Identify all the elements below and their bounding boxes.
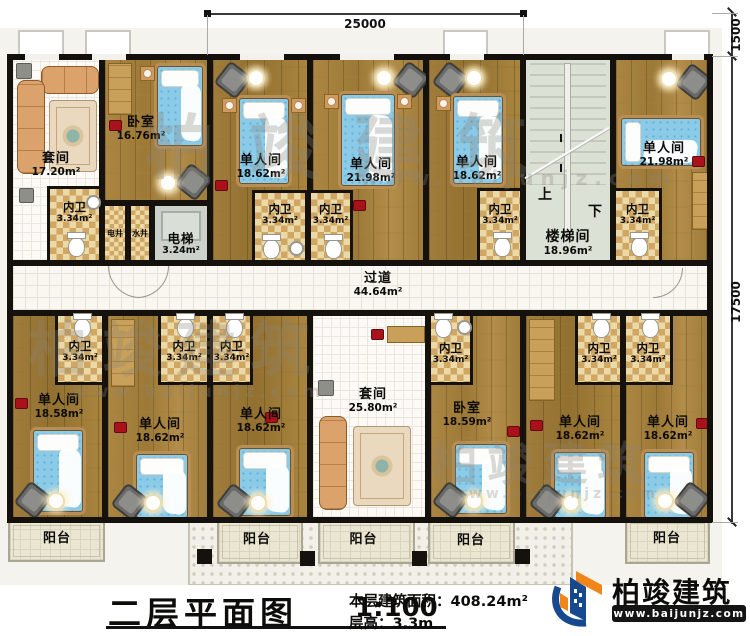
bathroom: 内卫3.34m² xyxy=(210,313,253,385)
balcony-label: 阳台 xyxy=(623,532,711,547)
dimension-line-top xyxy=(207,13,524,15)
toilet-icon xyxy=(642,318,659,338)
floor-area-value: 408.24m² xyxy=(451,594,528,610)
room-label: 内卫3.34m² xyxy=(213,340,250,363)
sink-icon xyxy=(457,320,472,335)
toilet-icon xyxy=(593,318,610,338)
toilet-icon xyxy=(494,237,511,257)
bathroom: 内卫3.34m² xyxy=(613,188,662,263)
toilet-icon xyxy=(263,239,280,259)
stair-rail xyxy=(564,63,571,233)
toilet-icon xyxy=(74,318,91,338)
room-label: 单人间18.62m² xyxy=(213,408,309,434)
room-bedroom-top: 卧室16.76m² xyxy=(102,57,210,203)
floor-area-line: 本层建筑面积：408.24m² xyxy=(349,590,528,611)
room-label: 内卫3.34m² xyxy=(626,342,670,365)
room-suite-bottom: 套间25.80m² xyxy=(310,313,428,520)
room-stairwell: 上 下 楼梯间18.96m² xyxy=(523,57,613,263)
room-label: 楼梯间18.96m² xyxy=(528,230,608,257)
bathroom: 内卫3.34m² xyxy=(623,313,673,385)
ceiling-light-icon xyxy=(249,494,267,512)
stairs-up-label: 上 xyxy=(538,184,552,204)
water-shaft: 水井 xyxy=(128,203,152,263)
ceiling-light-icon xyxy=(465,492,483,510)
lamp-icon xyxy=(215,180,228,191)
room-label: 单人间18.62m² xyxy=(626,416,710,442)
floor-height-line: 层高：3.3m xyxy=(349,612,433,633)
balcony-label: 阳台 xyxy=(316,533,411,548)
balcony-label: 阳台 xyxy=(12,532,102,547)
room-label: 单人间18.58m² xyxy=(13,394,105,420)
window xyxy=(240,54,284,60)
dimension-top-value: 25000 xyxy=(330,17,400,31)
armchair-icon xyxy=(173,162,212,201)
ceiling-light-icon xyxy=(562,494,580,512)
ceiling-light-icon xyxy=(375,69,393,87)
wardrobe-icon xyxy=(692,172,708,230)
cabinet-icon xyxy=(16,63,32,79)
column xyxy=(300,551,315,566)
floor-height-value: 3.3m xyxy=(393,616,434,632)
toilet-icon xyxy=(325,239,342,259)
room-label: 内卫3.34m² xyxy=(480,203,520,226)
door-arc xyxy=(137,266,169,298)
dimension-line-right xyxy=(731,12,733,524)
room-label: 单人间18.62m² xyxy=(534,416,626,442)
ceiling-light-icon xyxy=(247,69,265,87)
dimension-right-lower-value: 17500 xyxy=(729,272,743,332)
window xyxy=(672,54,704,60)
electrical-shaft: 电井 xyxy=(102,203,128,263)
column xyxy=(412,551,427,566)
ceiling-light-icon xyxy=(47,492,65,510)
balcony-label: 阳台 xyxy=(212,533,302,548)
sink-icon xyxy=(289,241,304,256)
toilet-icon xyxy=(177,318,194,338)
wardrobe-icon xyxy=(111,319,135,387)
lamp-icon xyxy=(371,329,384,340)
room-label: 单人间21.98m² xyxy=(622,142,706,168)
room-label: 单人间18.62m² xyxy=(435,156,519,182)
door-arc xyxy=(108,266,140,298)
room-label: 电井 xyxy=(105,206,125,260)
room-label: 内卫3.34m² xyxy=(578,342,620,365)
ceiling-light-icon xyxy=(660,70,678,88)
room-label: 单人间21.98m² xyxy=(325,158,417,184)
ceiling-light-icon xyxy=(465,69,483,87)
ceiling-light-icon xyxy=(656,492,674,510)
room-label: 内卫3.34m² xyxy=(616,203,659,226)
ceiling-light-icon xyxy=(144,494,162,512)
bathroom: 内卫3.34m² xyxy=(477,188,523,263)
title-block: 二层平面图 1:100 本层建筑面积：408.24m² 层高：3.3m 柏竣建筑… xyxy=(0,585,750,636)
bathroom: 内卫3.34m² xyxy=(308,190,353,263)
toilet-icon xyxy=(435,318,452,338)
room-label: 内卫3.34m² xyxy=(311,203,350,226)
bathroom: 内卫3.34m² xyxy=(55,313,105,385)
corridor: 过道44.64m² xyxy=(10,263,710,313)
room-label: 内卫3.34m² xyxy=(161,340,207,363)
room-label: 单人间18.62m² xyxy=(217,154,305,180)
column xyxy=(515,549,530,564)
room-label: 电梯3.24m² xyxy=(155,232,207,257)
column xyxy=(197,549,212,564)
bathroom: 内卫3.34m² xyxy=(158,313,210,385)
cabinet-icon xyxy=(19,188,34,203)
sofa-icon xyxy=(41,66,99,94)
room-label: 内卫3.34m² xyxy=(50,201,99,224)
sofa-icon xyxy=(319,416,347,510)
door-arc xyxy=(653,268,683,298)
window xyxy=(340,54,394,60)
room-label: 卧室16.76m² xyxy=(105,116,177,142)
extension-line xyxy=(207,15,208,55)
bathroom: 内卫3.34m² xyxy=(252,190,308,263)
bed-icon xyxy=(136,454,188,518)
brand-website: www.baijunjz.com xyxy=(612,605,746,622)
desk-icon xyxy=(387,326,425,343)
room-label: 内卫3.34m² xyxy=(58,340,102,363)
window xyxy=(92,54,126,60)
room-label: 套间25.80m² xyxy=(327,388,419,414)
room-label: 水井 xyxy=(131,206,149,260)
room-label: 单人间18.62m² xyxy=(114,418,206,444)
room-label: 过道44.64m² xyxy=(333,272,423,298)
room-label: 内卫3.34m² xyxy=(431,342,470,365)
bathroom: 内卫3.34m² xyxy=(428,313,473,385)
floor-height-label: 层高： xyxy=(349,616,393,632)
dimension-right-upper-value: 1500 xyxy=(729,13,743,57)
extension-line xyxy=(523,15,524,55)
bed-icon xyxy=(554,452,606,518)
window xyxy=(450,54,484,60)
extension-line xyxy=(712,522,738,523)
lamp-icon xyxy=(507,426,520,437)
armchair-icon xyxy=(674,62,713,101)
brand-logo-icon xyxy=(548,563,608,629)
rug-icon xyxy=(353,426,411,506)
toilet-icon xyxy=(68,237,85,257)
ceiling-light-icon xyxy=(159,174,177,192)
wardrobe-icon xyxy=(529,319,555,401)
bathroom: 内卫3.34m² xyxy=(575,313,623,385)
room-label: 卧室18.59m² xyxy=(431,402,503,428)
bathroom: 内卫3.34m² xyxy=(47,186,102,263)
room-label: 内卫3.34m² xyxy=(255,203,305,226)
stairs-down-label: 下 xyxy=(588,201,602,221)
balcony-label: 阳台 xyxy=(426,534,516,549)
wardrobe-icon xyxy=(108,63,132,115)
window xyxy=(25,54,59,60)
room-label: 套间17.20m² xyxy=(16,152,96,178)
toilet-icon xyxy=(631,237,648,257)
lamp-icon xyxy=(353,200,366,211)
toilet-icon xyxy=(226,318,243,338)
floor-plan: 阳台 阳台 阳台 阳台 阳台 套间17.20m² 卧室16.76m² xyxy=(0,0,750,636)
elevator: 电梯3.24m² xyxy=(152,203,210,263)
floor-area-label: 本层建筑面积： xyxy=(349,594,451,610)
